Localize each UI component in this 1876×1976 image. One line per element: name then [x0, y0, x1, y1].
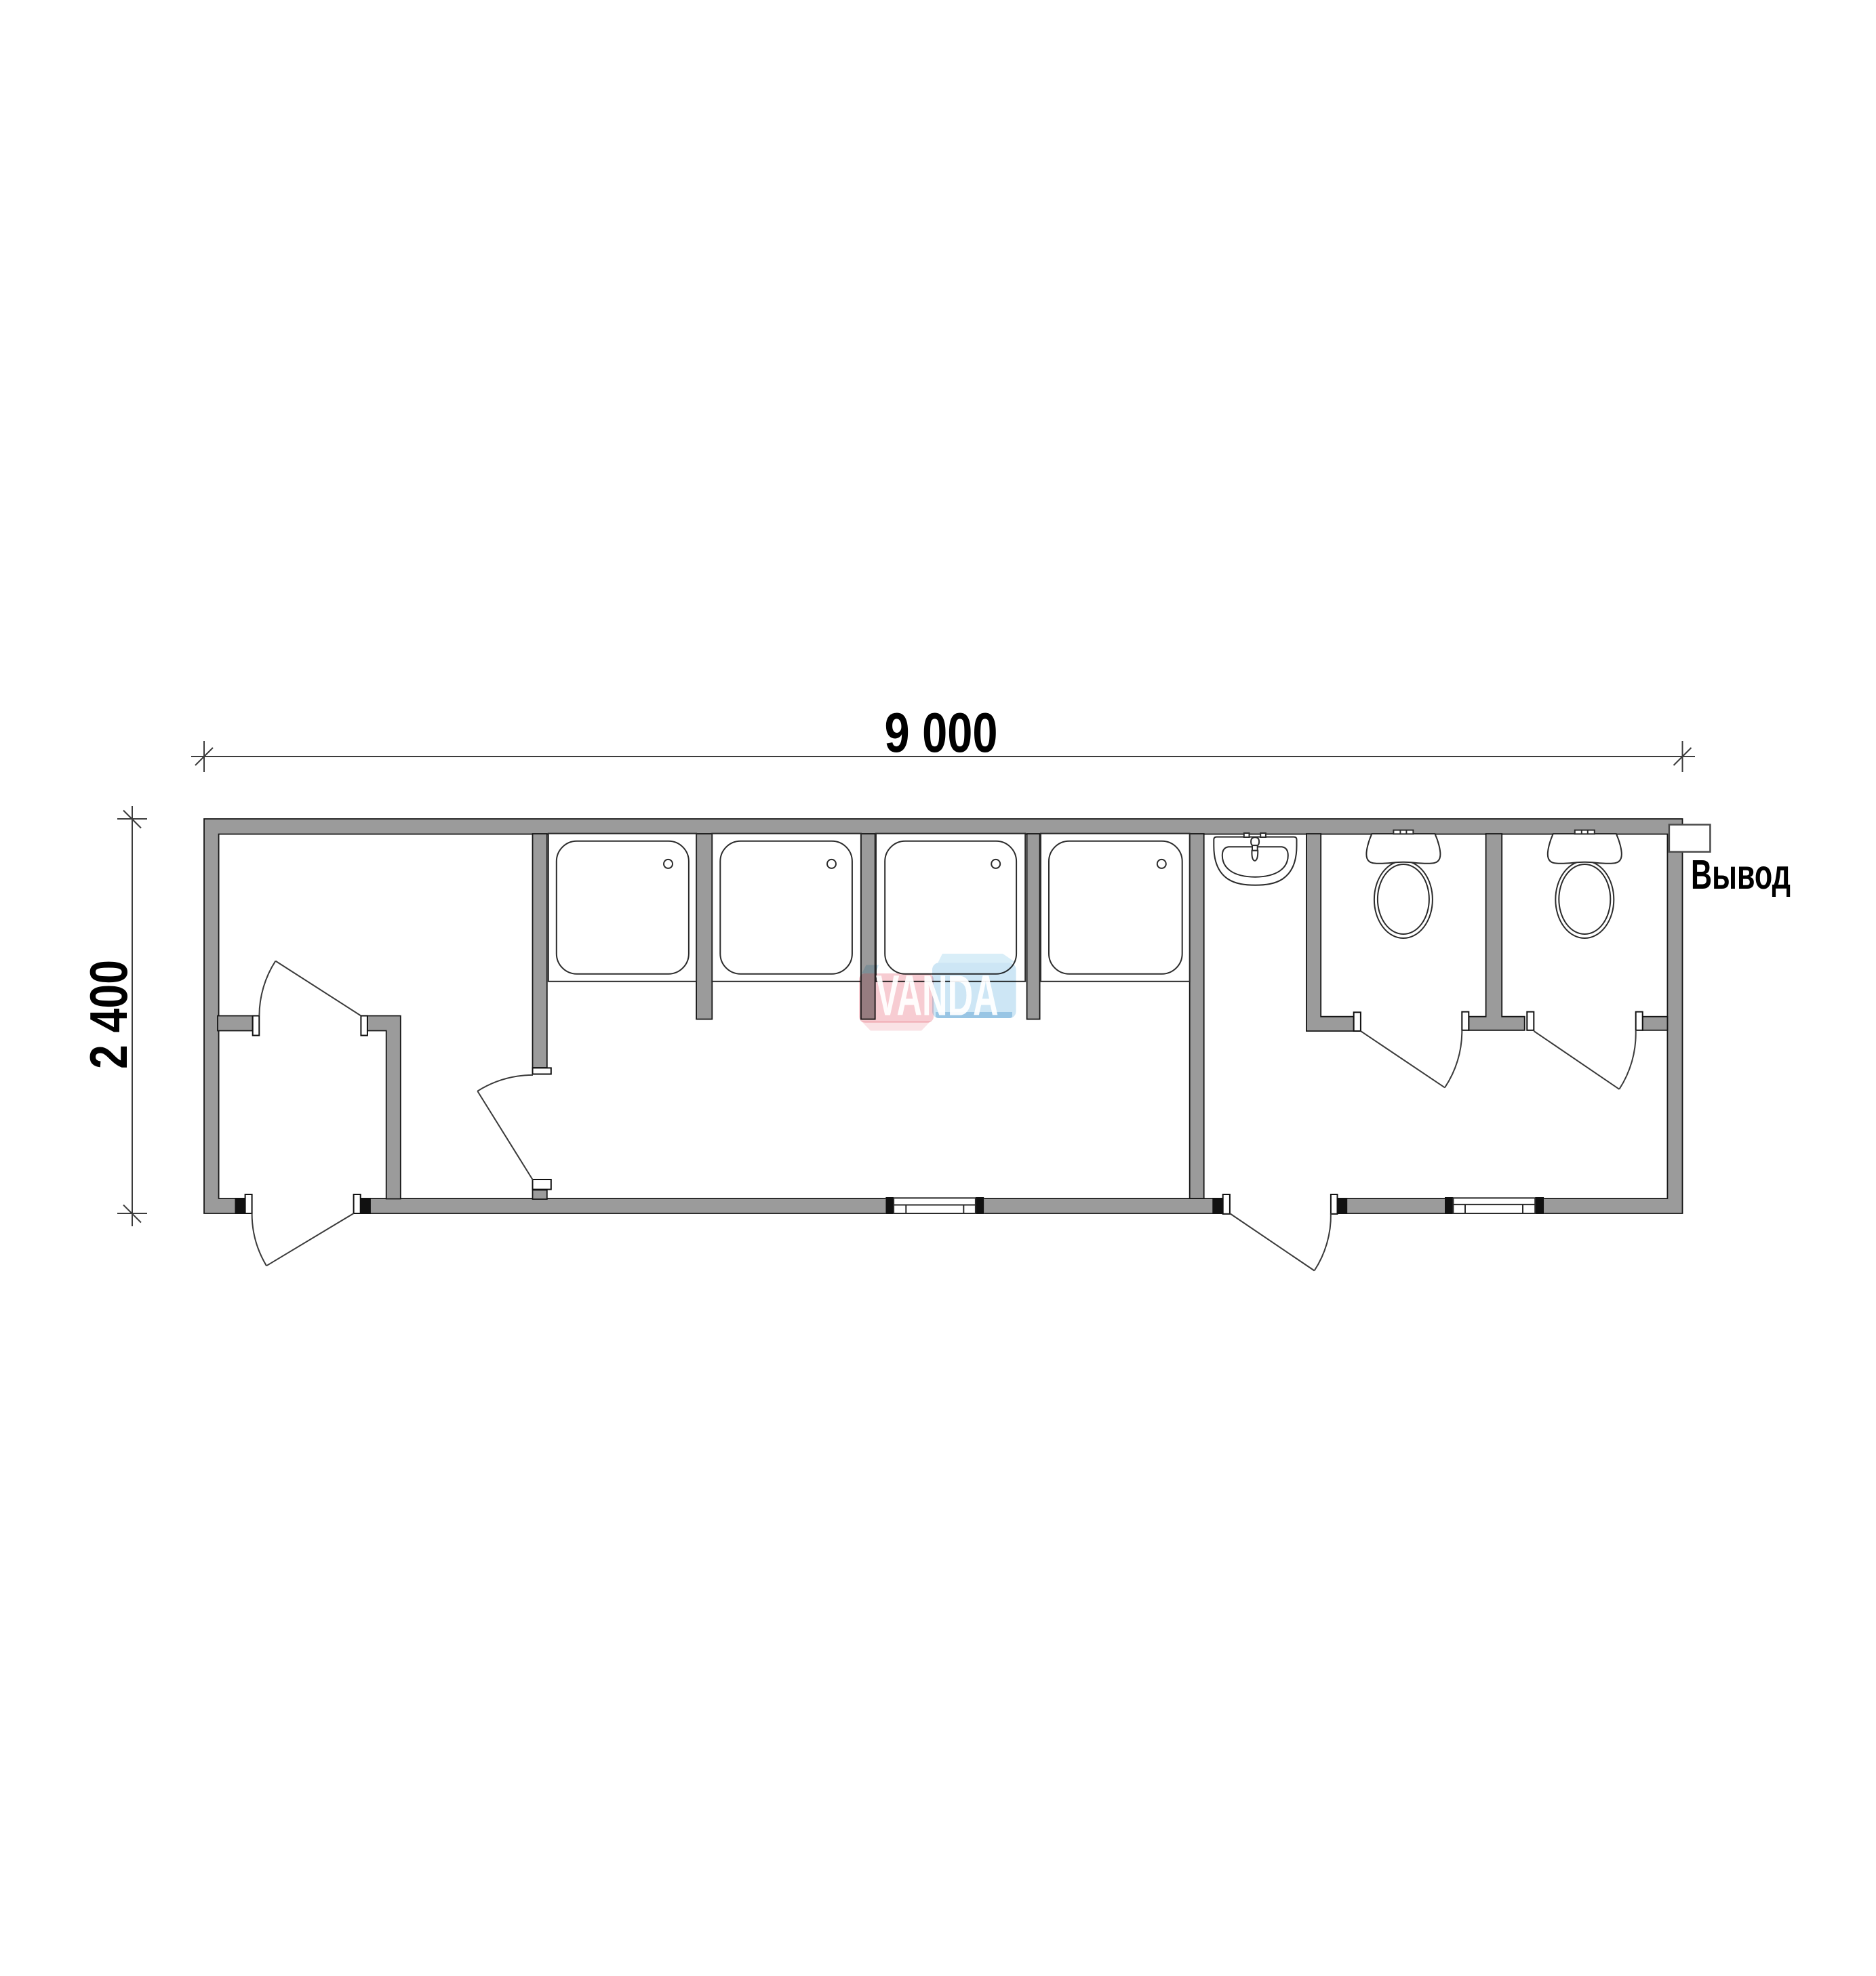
svg-text:Вывод: Вывод [1691, 851, 1791, 898]
svg-text:2 400: 2 400 [79, 960, 138, 1069]
svg-text:9 000: 9 000 [885, 701, 998, 764]
svg-text:VANDA: VANDA [876, 964, 999, 1028]
